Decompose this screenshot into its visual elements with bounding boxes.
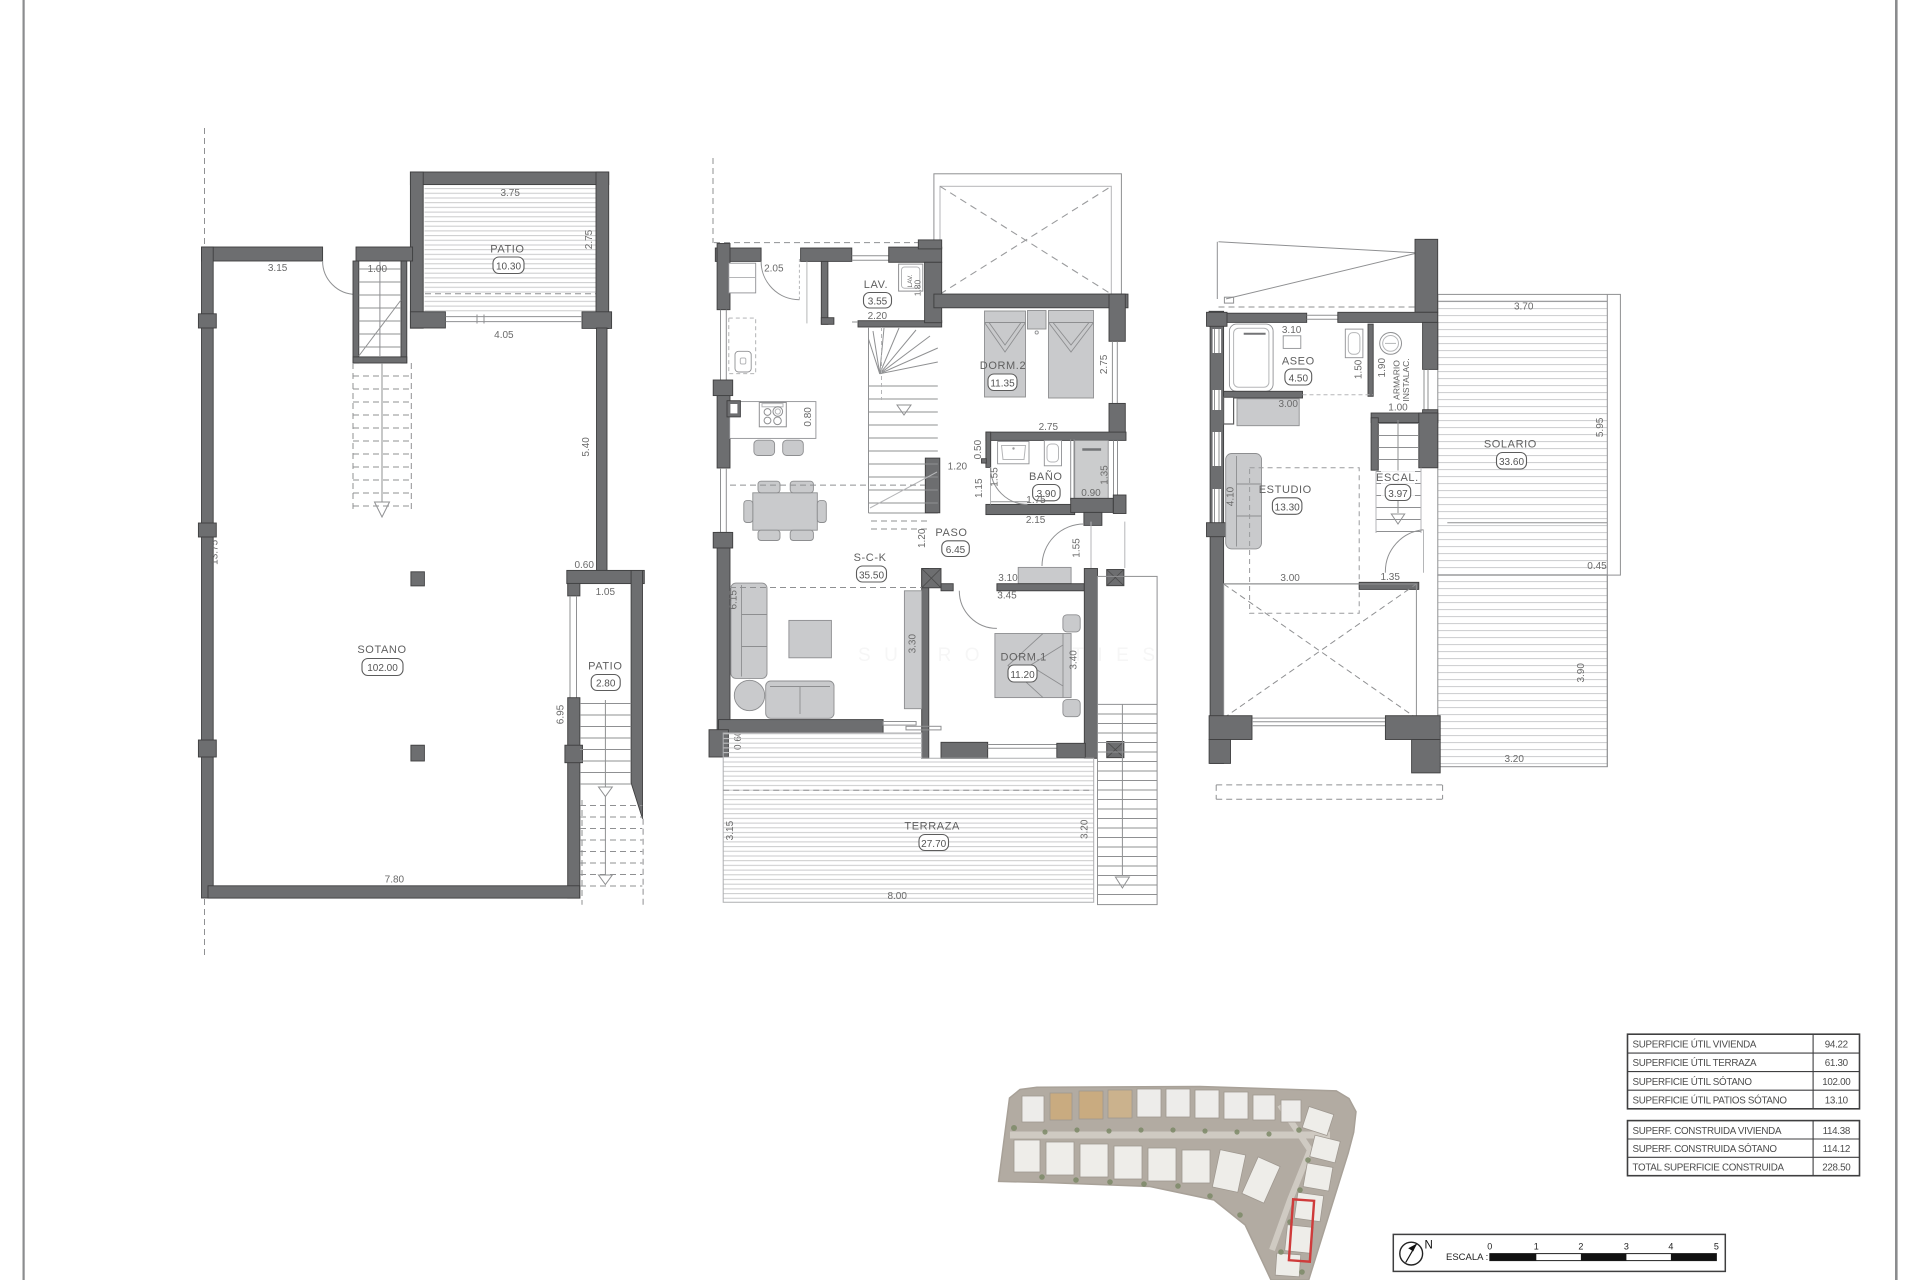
svg-text:2.80: 2.80 [596,679,616,690]
svg-text:3.10: 3.10 [998,573,1018,584]
svg-text:1.20: 1.20 [948,462,968,473]
svg-text:TOTAL SUPERFICIE CONSTRUIDA: TOTAL SUPERFICIE CONSTRUIDA [1633,1163,1785,1174]
svg-text:6.95: 6.95 [556,704,567,724]
svg-text:35.50: 35.50 [859,570,884,581]
svg-text:1.55: 1.55 [1072,538,1083,558]
svg-text:0: 0 [1487,1242,1492,1252]
svg-text:3.15: 3.15 [268,263,288,274]
svg-text:4.50: 4.50 [1289,373,1309,384]
svg-text:SUPERF. CONSTRUIDA VIVIENDA: SUPERF. CONSTRUIDA VIVIENDA [1633,1126,1782,1137]
svg-text:3: 3 [1624,1242,1629,1252]
svg-text:ESTUDIO: ESTUDIO [1259,484,1312,496]
svg-text:10.30: 10.30 [496,262,521,273]
svg-text:1.50: 1.50 [1354,359,1365,379]
svg-text:13.75: 13.75 [210,539,221,564]
svg-text:PATIO: PATIO [490,244,524,256]
svg-text:61.30: 61.30 [1825,1058,1849,1069]
svg-text:3.10: 3.10 [1282,325,1302,336]
svg-text:3.97: 3.97 [1388,489,1408,500]
svg-text:3.75: 3.75 [500,188,520,199]
svg-text:1.00: 1.00 [368,264,388,275]
svg-text:1: 1 [1534,1242,1539,1252]
svg-text:3.70: 3.70 [1514,302,1534,313]
svg-text:1.20: 1.20 [917,528,928,548]
svg-text:8.00: 8.00 [887,891,907,902]
svg-text:1.55: 1.55 [990,467,1001,487]
svg-text:BAÑO: BAÑO [1029,470,1063,483]
svg-text:1.05: 1.05 [596,587,616,598]
svg-text:SUPERF. CONSTRUIDA SÓTANO: SUPERF. CONSTRUIDA SÓTANO [1633,1144,1778,1155]
svg-text:13.10: 13.10 [1825,1095,1849,1106]
svg-text:DORM.1: DORM.1 [1001,652,1047,664]
svg-text:0.80: 0.80 [803,407,814,427]
svg-text:SOLARIO: SOLARIO [1484,439,1537,451]
svg-text:PATIO: PATIO [588,661,622,673]
svg-text:3.20: 3.20 [1080,819,1091,839]
svg-text:4.05: 4.05 [494,330,514,341]
svg-text:ESCALA :: ESCALA : [1446,1252,1488,1263]
svg-text:2.75: 2.75 [584,229,595,249]
svg-text:3.00: 3.00 [1280,573,1300,584]
svg-text:114.12: 114.12 [1823,1144,1850,1155]
svg-text:3.30: 3.30 [908,634,919,654]
svg-text:3.40: 3.40 [1068,650,1079,670]
svg-text:2.15: 2.15 [1026,515,1046,526]
svg-text:1.00: 1.00 [1388,403,1408,414]
svg-text:1.35: 1.35 [1100,465,1111,485]
svg-text:1.90: 1.90 [1377,358,1388,378]
svg-text:ARMARIO: ARMARIO [1392,360,1402,400]
svg-text:SUPERFICIE ÚTIL PATIOS SÓTANO: SUPERFICIE ÚTIL PATIOS SÓTANO [1633,1095,1788,1106]
svg-text:3.45: 3.45 [997,591,1017,602]
svg-text:3.20: 3.20 [1504,754,1524,765]
svg-text:INSTALAC.: INSTALAC. [1401,358,1411,401]
svg-text:0.90: 0.90 [1081,488,1101,499]
svg-text:102.00: 102.00 [1822,1077,1851,1088]
svg-text:5: 5 [1714,1242,1719,1252]
svg-text:3.55: 3.55 [868,296,888,307]
svg-text:SUPERFICIE ÚTIL VIVIENDA: SUPERFICIE ÚTIL VIVIENDA [1633,1040,1757,1051]
svg-text:3.15: 3.15 [725,820,736,840]
svg-text:11.35: 11.35 [990,379,1015,390]
svg-text:0.60: 0.60 [574,560,594,571]
svg-text:102.00: 102.00 [367,663,398,674]
svg-text:ESCAL.: ESCAL. [1376,472,1419,484]
svg-text:PASO: PASO [935,527,967,539]
svg-text:2.75: 2.75 [1039,422,1059,433]
svg-text:SUPERFICIE ÚTIL TERRAZA: SUPERFICIE ÚTIL TERRAZA [1633,1058,1758,1069]
svg-text:114.38: 114.38 [1823,1126,1851,1137]
svg-text:5.95: 5.95 [1595,417,1606,437]
svg-text:1.80: 1.80 [913,279,923,296]
svg-text:33.60: 33.60 [1499,457,1524,468]
svg-text:S-C-K: S-C-K [854,552,887,564]
svg-text:7.80: 7.80 [385,875,405,886]
svg-text:1.75: 1.75 [1026,495,1046,506]
svg-text:N: N [1425,1240,1433,1252]
svg-text:5.40: 5.40 [581,437,592,457]
svg-text:SUPERFICIE ÚTIL SÓTANO: SUPERFICIE ÚTIL SÓTANO [1633,1077,1753,1088]
svg-text:4: 4 [1668,1242,1673,1252]
svg-text:ASEO: ASEO [1282,356,1315,368]
svg-text:1.15: 1.15 [974,478,985,498]
svg-text:94.22: 94.22 [1825,1040,1848,1051]
svg-text:27.70: 27.70 [921,839,946,850]
svg-text:DORM.2: DORM.2 [980,360,1026,372]
svg-text:0.45: 0.45 [1587,561,1607,572]
svg-text:3.00: 3.00 [1278,399,1298,410]
svg-text:2: 2 [1578,1242,1583,1252]
svg-text:11.20: 11.20 [1010,670,1035,681]
svg-text:TERRAZA: TERRAZA [904,821,960,833]
svg-text:4.10: 4.10 [1226,486,1237,506]
svg-text:1.35: 1.35 [1380,572,1400,583]
svg-text:6.15: 6.15 [729,590,740,610]
svg-text:SOTANO: SOTANO [357,644,406,656]
svg-text:LAV.: LAV. [864,279,888,291]
svg-text:0.50: 0.50 [973,439,984,459]
svg-text:6.45: 6.45 [946,545,966,556]
svg-text:2.05: 2.05 [764,264,784,275]
svg-text:13.30: 13.30 [1275,502,1300,513]
svg-text:228.50: 228.50 [1822,1163,1851,1174]
svg-text:3.90: 3.90 [1576,663,1587,683]
svg-text:2.75: 2.75 [1099,354,1110,374]
